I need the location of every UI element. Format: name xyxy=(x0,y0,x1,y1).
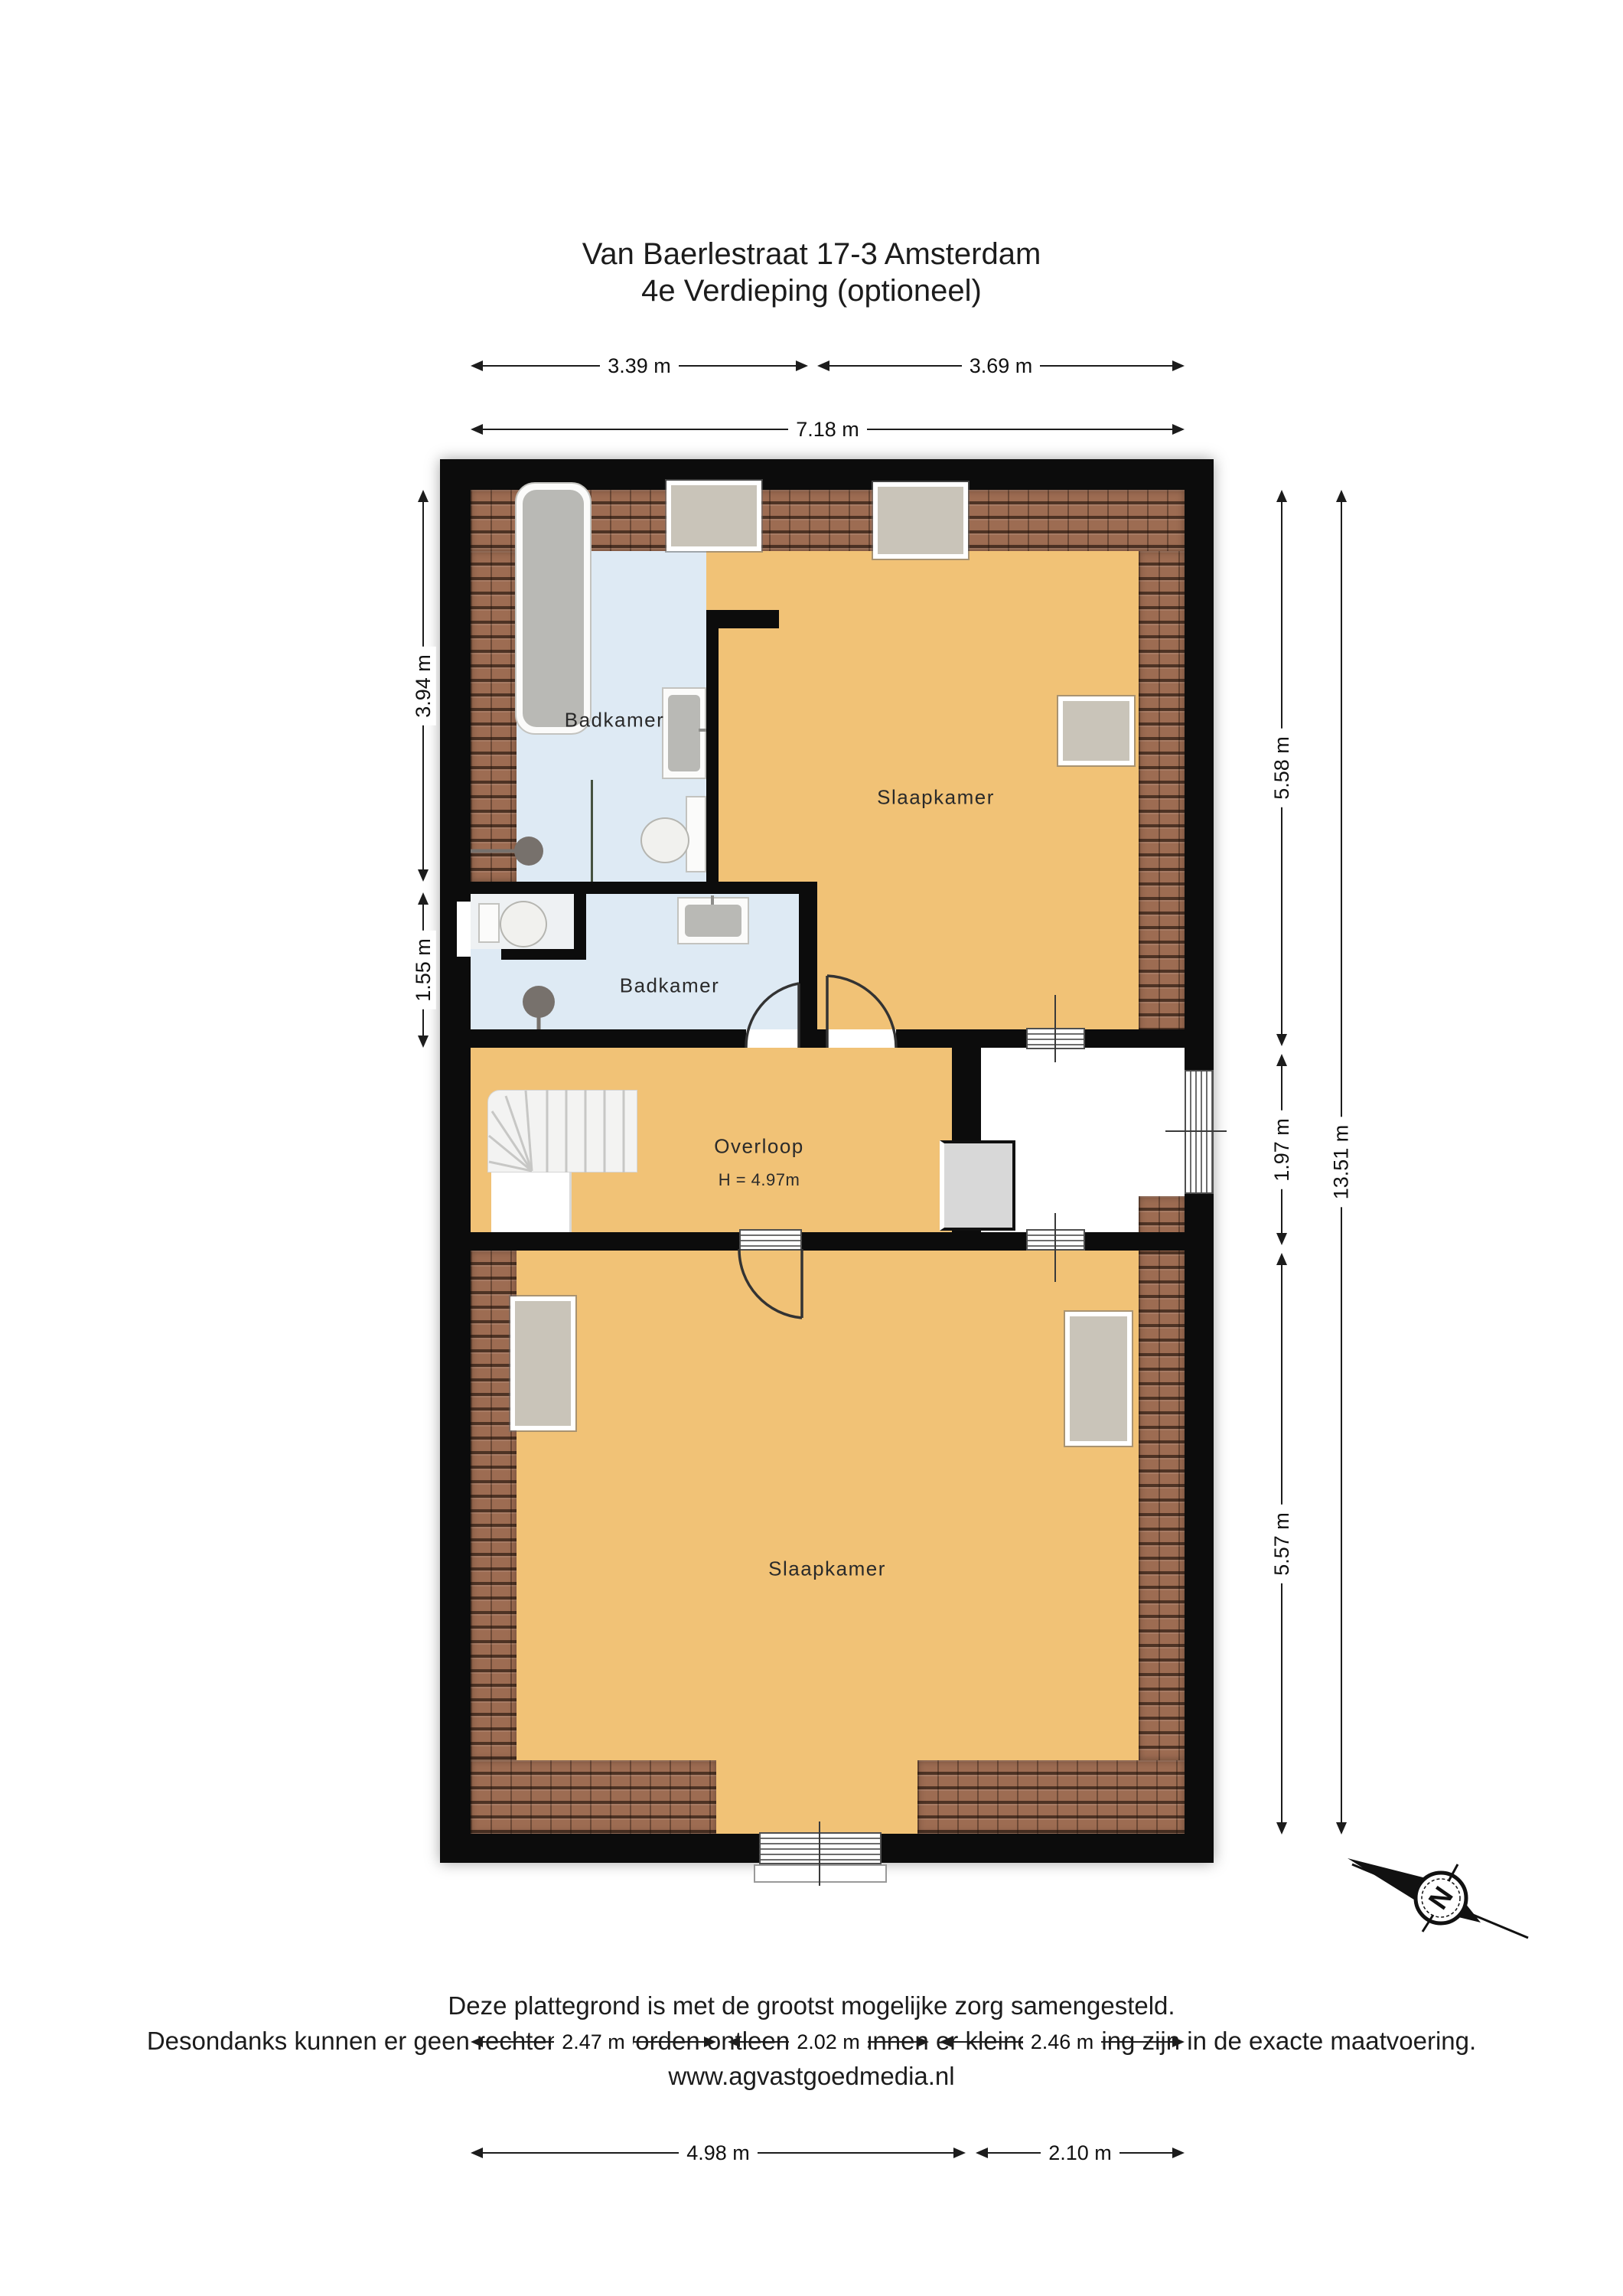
dim-left-lower: 1.55 m xyxy=(413,892,433,1048)
dim-bottom-5: 2.10 m xyxy=(976,2143,1185,2163)
dim-label: 3.39 m xyxy=(600,354,679,379)
dim-label: 7.18 m xyxy=(788,417,867,442)
dim-label: 5.58 m xyxy=(1269,729,1295,807)
dim-label: 5.57 m xyxy=(1269,1505,1295,1583)
dim-label: 2.10 m xyxy=(1041,2141,1119,2166)
room-label-overloop: Overloop xyxy=(714,1135,804,1159)
dim-label: 2.47 m xyxy=(554,2030,633,2055)
stair-treads xyxy=(489,1090,624,1172)
dim-right-total: 13.51 m xyxy=(1331,490,1351,1835)
dim-right-lower: 5.57 m xyxy=(1272,1253,1292,1835)
page-subtitle: 4e Verdieping (optioneel) xyxy=(0,274,1623,308)
dim-top-right: 3.69 m xyxy=(817,356,1185,376)
dim-right-middle: 1.97 m xyxy=(1272,1054,1292,1245)
dim-label: 4.98 m xyxy=(679,2141,758,2166)
dim-label: 3.69 m xyxy=(962,354,1041,379)
floorplan-drawing: Badkamer Slaapkamer Badkamer Overloop H … xyxy=(440,459,1214,1863)
dim-label: 13.51 m xyxy=(1329,1117,1354,1208)
dim-top-total: 7.18 m xyxy=(471,419,1185,439)
dim-label: 1.55 m xyxy=(411,931,436,1009)
disclaimer-line-1: Deze plattegrond is met de grootst mogel… xyxy=(0,1991,1623,2020)
floorplan-page: Van Baerlestraat 17-3 Amsterdam 4e Verdi… xyxy=(0,0,1623,2296)
dim-right-upper: 5.58 m xyxy=(1272,490,1292,1046)
dim-label: 3.94 m xyxy=(411,647,436,726)
dim-label: 2.46 m xyxy=(1023,2030,1102,2055)
dim-bottom-4: 4.98 m xyxy=(471,2143,966,2163)
room-label-badkamer-top: Badkamer xyxy=(565,709,665,732)
dim-label: 2.02 m xyxy=(789,2030,868,2055)
page-title: Van Baerlestraat 17-3 Amsterdam xyxy=(0,237,1623,272)
shower-arms xyxy=(471,851,539,1029)
door-swing-overlay xyxy=(440,459,1214,1863)
room-label-slaapkamer-top: Slaapkamer xyxy=(877,786,995,810)
website-url: www.agvastgoedmedia.nl xyxy=(0,2062,1623,2091)
room-label-badkamer-small: Badkamer xyxy=(620,974,720,998)
compass-rose: N xyxy=(1343,1837,1542,1967)
dim-label: 1.97 m xyxy=(1269,1110,1295,1189)
dim-top-left: 3.39 m xyxy=(471,356,808,376)
window-sill-exterior xyxy=(754,1864,887,1883)
dim-left-upper: 3.94 m xyxy=(413,490,433,882)
room-label-slaapkamer-bottom: Slaapkamer xyxy=(768,1557,886,1581)
room-label-overloop-height: H = 4.97m xyxy=(719,1170,800,1190)
